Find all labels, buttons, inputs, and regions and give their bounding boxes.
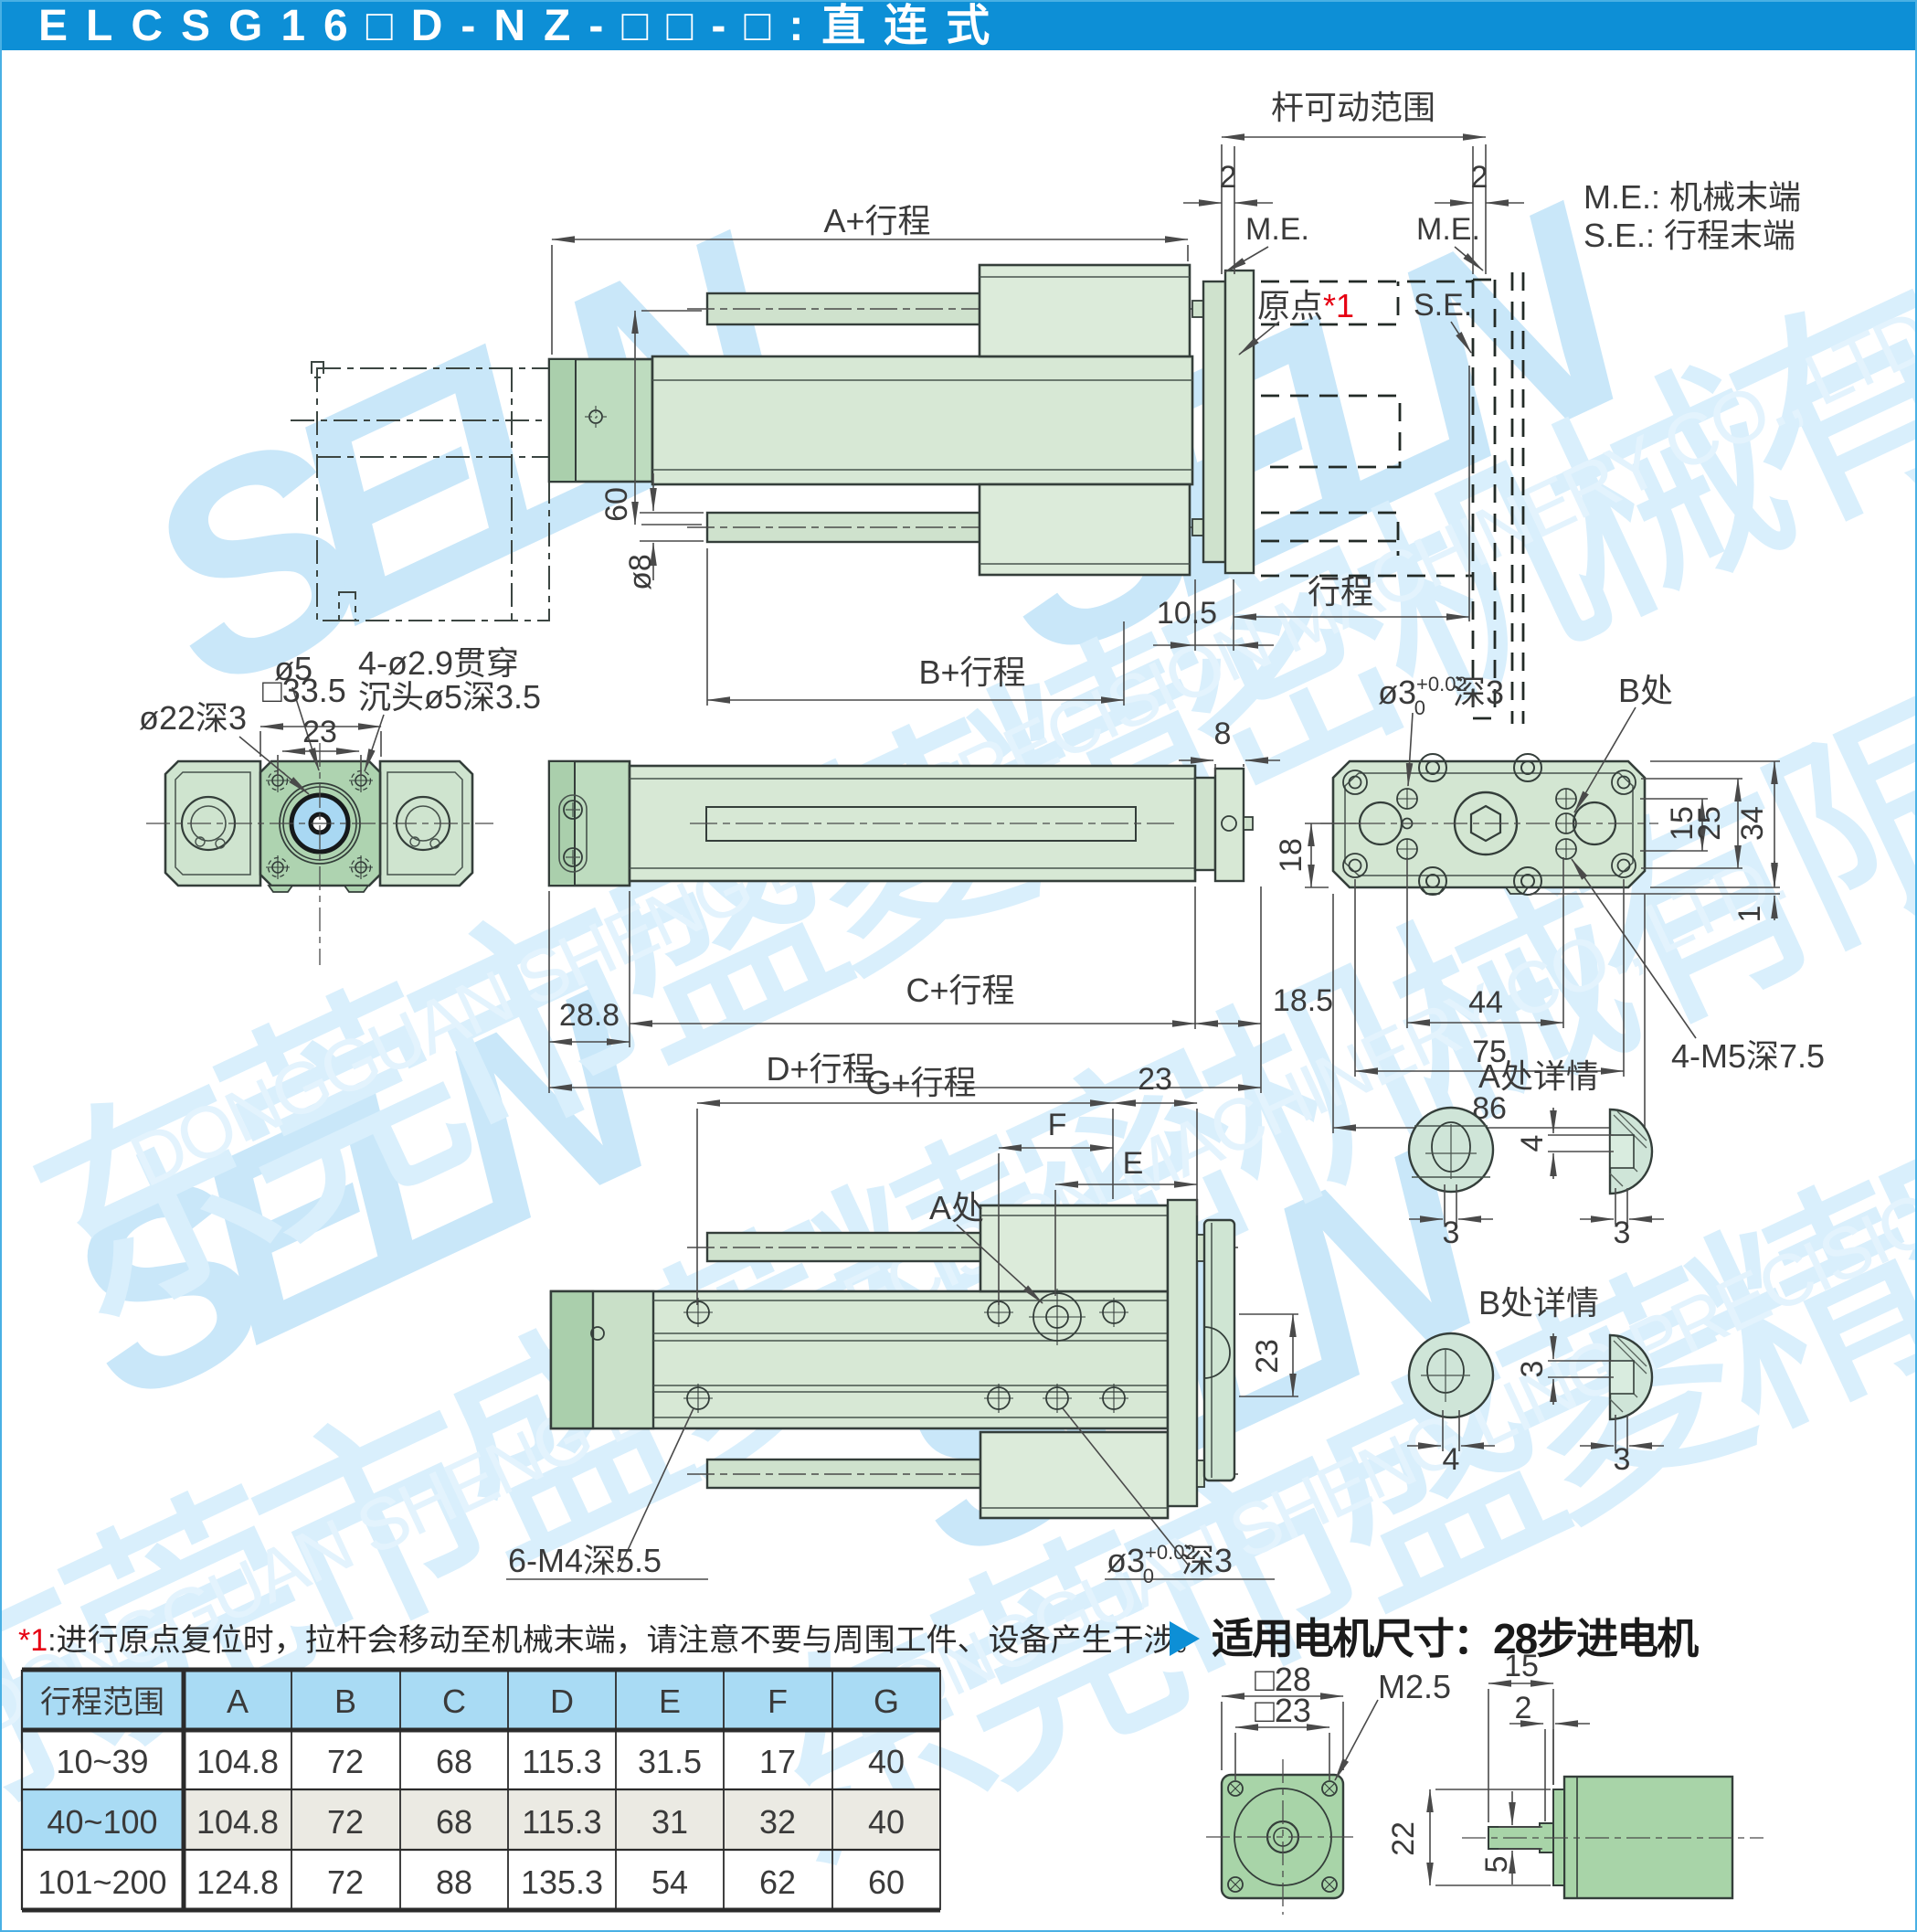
svg-text:40: 40	[868, 1803, 905, 1841]
svg-text:M2.5: M2.5	[1378, 1668, 1451, 1705]
svg-text:68: 68	[436, 1803, 472, 1841]
svg-text:101~200: 101~200	[37, 1863, 166, 1901]
svg-text:32: 32	[759, 1803, 796, 1841]
svg-text:124.8: 124.8	[196, 1863, 279, 1901]
svg-text:C+行程: C+行程	[906, 971, 1014, 1009]
svg-text:60: 60	[868, 1863, 905, 1901]
svg-text:2: 2	[1220, 160, 1237, 195]
svg-text:88: 88	[436, 1863, 472, 1901]
svg-text:40: 40	[868, 1743, 905, 1780]
svg-text:3: 3	[1515, 1361, 1550, 1378]
svg-text:E: E	[1123, 1146, 1144, 1181]
svg-text:104.8: 104.8	[196, 1803, 279, 1841]
svg-text:5: 5	[1479, 1856, 1514, 1874]
svg-text:115.3: 115.3	[522, 1743, 601, 1780]
svg-text:M.E.: 机械末端: M.E.: 机械末端	[1583, 178, 1801, 216]
svg-text:B处: B处	[1618, 672, 1673, 709]
svg-text:68: 68	[436, 1743, 472, 1780]
svg-text:B处详情: B处详情	[1478, 1284, 1599, 1322]
svg-text:3: 3	[1614, 1215, 1631, 1250]
svg-text:25: 25	[1692, 806, 1727, 841]
svg-text:28.8: 28.8	[559, 998, 620, 1033]
svg-text:40~100: 40~100	[47, 1803, 157, 1841]
svg-text:行程范围: 行程范围	[40, 1685, 164, 1720]
svg-text:72: 72	[327, 1863, 364, 1901]
svg-text:D: D	[550, 1683, 574, 1720]
svg-text:4-ø2.9贯穿: 4-ø2.9贯穿	[358, 644, 519, 682]
svg-text:72: 72	[327, 1803, 364, 1841]
svg-text:3: 3	[1614, 1442, 1631, 1477]
svg-text:S.E.: S.E.	[1414, 288, 1472, 323]
svg-text:D+行程: D+行程	[766, 1050, 874, 1088]
svg-text:A处详情: A处详情	[1478, 1057, 1599, 1095]
svg-text:104.8: 104.8	[196, 1743, 279, 1780]
svg-text:2: 2	[1515, 1691, 1532, 1725]
svg-text:54: 54	[651, 1863, 688, 1901]
svg-text:G+行程: G+行程	[865, 1064, 976, 1101]
svg-text:6-M4深5.5: 6-M4深5.5	[508, 1542, 662, 1579]
svg-text:4-M5深7.5: 4-M5深7.5	[1671, 1037, 1825, 1075]
svg-text:原点*1: 原点*1	[1257, 287, 1354, 324]
svg-text:F: F	[1048, 1108, 1067, 1142]
svg-text:60: 60	[599, 487, 634, 522]
svg-text:M.E.: M.E.	[1416, 212, 1480, 247]
svg-text:3: 3	[1443, 1215, 1460, 1250]
svg-text:ø22深3: ø22深3	[139, 699, 247, 737]
svg-text:18.5: 18.5	[1273, 983, 1333, 1018]
svg-text:沉头ø5深3.5: 沉头ø5深3.5	[358, 678, 541, 716]
svg-text:ELCSG16□D-NZ-□□-□:直连式: ELCSG16□D-NZ-□□-□:直连式	[38, 2, 1008, 50]
svg-text:F: F	[768, 1683, 788, 1720]
svg-text:1: 1	[1732, 906, 1767, 923]
svg-text:15: 15	[1504, 1649, 1539, 1683]
svg-text:□23: □23	[1255, 1692, 1311, 1729]
svg-text:72: 72	[327, 1743, 364, 1780]
svg-text:23: 23	[302, 715, 337, 749]
svg-text:A: A	[227, 1683, 249, 1720]
svg-text:62: 62	[759, 1863, 796, 1901]
svg-text:B+行程: B+行程	[918, 653, 1025, 691]
svg-text:*1:进行原点复位时，拉杆会移动至机械末端，请注意不要与周围: *1:进行原点复位时，拉杆会移动至机械末端，请注意不要与周围工件、设备产生干涉。	[18, 1623, 1206, 1658]
svg-text:17: 17	[759, 1743, 796, 1780]
svg-text:□33.5: □33.5	[262, 672, 346, 709]
svg-text:34: 34	[1735, 806, 1770, 841]
svg-text:4: 4	[1515, 1135, 1550, 1152]
svg-text:135.3: 135.3	[521, 1863, 603, 1901]
svg-text:行程: 行程	[1308, 573, 1373, 610]
svg-text:A+行程: A+行程	[823, 202, 930, 239]
svg-text:23: 23	[1138, 1062, 1172, 1097]
svg-text:44: 44	[1468, 985, 1503, 1020]
svg-text:杆可动范围: 杆可动范围	[1271, 89, 1435, 126]
svg-text:22: 22	[1386, 1821, 1421, 1856]
svg-text:A处: A处	[929, 1189, 984, 1226]
svg-text:18: 18	[1274, 838, 1308, 873]
svg-text:31.5: 31.5	[638, 1743, 702, 1780]
svg-text:10~39: 10~39	[56, 1743, 148, 1780]
svg-text:适用电机尺寸：28步进电机: 适用电机尺寸：28步进电机	[1212, 1615, 1699, 1662]
svg-text:E: E	[659, 1683, 681, 1720]
svg-text:4: 4	[1443, 1442, 1460, 1477]
svg-text:S.E.: 行程末端: S.E.: 行程末端	[1583, 217, 1795, 254]
svg-text:115.3: 115.3	[522, 1803, 601, 1841]
svg-text:8: 8	[1214, 717, 1232, 751]
svg-text:10.5: 10.5	[1157, 596, 1217, 631]
svg-text:G: G	[874, 1683, 899, 1720]
svg-text:23: 23	[1250, 1339, 1285, 1374]
svg-text:ø8: ø8	[623, 554, 658, 590]
svg-text:2: 2	[1471, 160, 1488, 195]
svg-text:31: 31	[651, 1803, 688, 1841]
svg-text:C: C	[442, 1683, 466, 1720]
svg-text:M.E.: M.E.	[1245, 212, 1309, 247]
svg-text:B: B	[334, 1683, 356, 1720]
